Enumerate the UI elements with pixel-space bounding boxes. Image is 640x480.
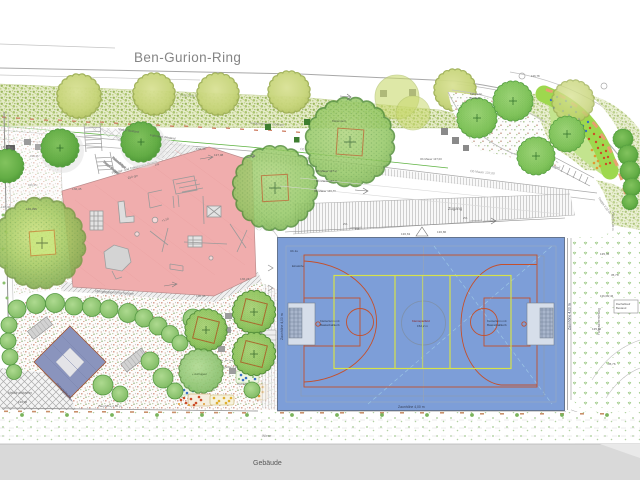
svg-text:136,36: 136,36 [196,294,206,298]
svg-text:Ben-Gurion-Ring: Ben-Gurion-Ring [134,50,241,65]
svg-text:Einwürfe: Einwürfe [292,264,304,268]
svg-text:Ob Mauer 137 ¹²: Ob Mauer 137 ¹² [316,179,337,183]
svg-text:Basketballkorb: Basketballkorb [487,323,507,327]
svg-text:Gebäude: Gebäude [253,460,282,467]
svg-text:137,08: 137,08 [214,153,224,157]
svg-text:Basketballkorb: Basketballkorb [320,323,340,327]
svg-text:136,45: 136,45 [28,183,37,187]
svg-text:2%: 2% [343,222,348,226]
svg-text:136,395: 136,395 [26,207,37,211]
svg-text:136,86: 136,86 [437,230,447,234]
svg-text:136,78: 136,78 [531,74,540,78]
svg-text:Zaunhöhe 4,00 m: Zaunhöhe 4,00 m [280,313,284,340]
svg-text:Bestand: Bestand [616,306,627,310]
svg-text:136,26: 136,26 [240,277,250,281]
svg-text:Zaunhöhe 4,00 m: Zaunhöhe 4,00 m [398,405,425,409]
svg-text:Zaunhöhe 2,00 m: Zaunhöhe 2,00 m [98,404,122,408]
svg-text:136,36: 136,36 [18,400,28,404]
svg-text:136,45: 136,45 [1,145,11,149]
svg-text:136,08/,46: 136,08/,46 [600,294,614,298]
svg-text:35,76: 35,76 [608,362,616,366]
svg-text:Turnh. 2,30 m: Turnh. 2,30 m [611,212,615,231]
svg-text:+ Aufzugeul: + Aufzugeul [192,372,207,376]
svg-text:Ob Mauer 137,00: Ob Mauer 137,00 [420,157,442,161]
svg-text:136,45: 136,45 [72,187,82,191]
svg-text:Blätterdach: Blätterdach [332,119,347,123]
svg-text:135,76: 135,76 [592,327,602,331]
svg-text:152,2 m: 152,2 m [417,324,428,328]
svg-text:Wiese: Wiese [262,434,272,438]
svg-text:136,45: 136,45 [30,154,39,158]
svg-text:136,43: 136,43 [196,147,206,151]
svg-text:Bestand: Bestand [470,96,481,100]
svg-text:Ub.1u: Ub.1u [290,249,298,253]
svg-text:Kleinspielfeld: Kleinspielfeld [412,319,430,323]
svg-text:1%: 1% [355,227,360,231]
svg-text:Metallrundbarren: Metallrundbarren [8,391,32,395]
svg-text:135,76: 135,76 [600,252,610,256]
svg-text:Ob Mauer 137 u²: Ob Mauer 137 u² [316,169,337,173]
svg-text:136,63: 136,63 [401,232,411,236]
svg-text:2%: 2% [463,216,468,220]
svg-text:35,76: 35,76 [611,273,619,277]
